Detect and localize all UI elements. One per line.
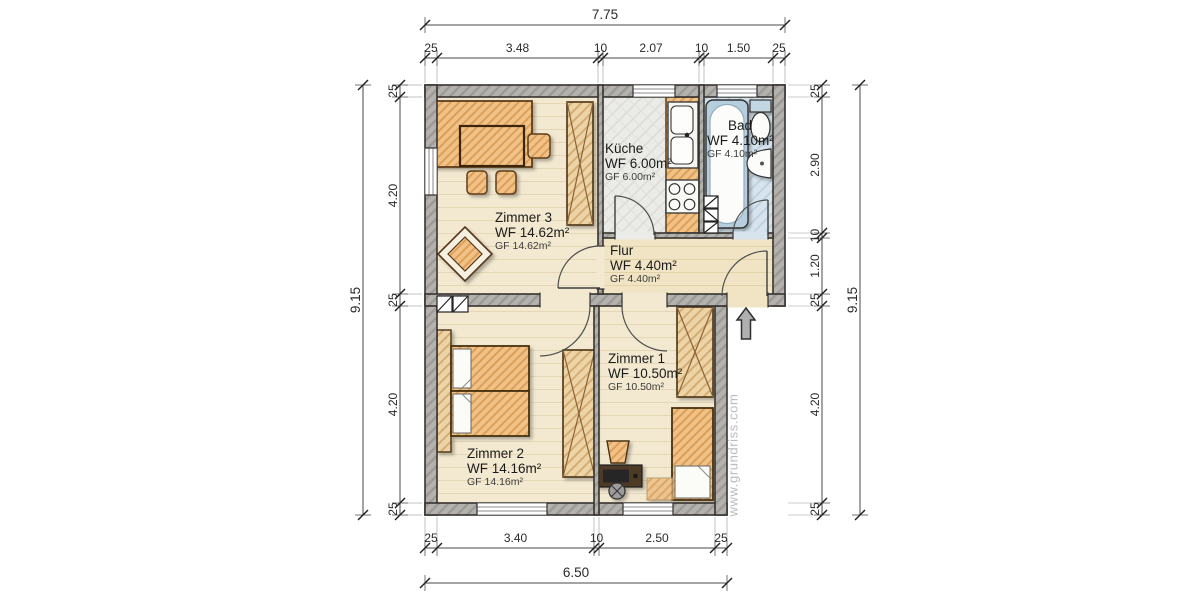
room-name: Zimmer 2	[467, 446, 541, 461]
room-name: Zimmer 3	[495, 210, 569, 225]
dimension-label: 2.90	[808, 153, 822, 177]
room-name: Küche	[605, 141, 672, 156]
dimension-label: 25	[714, 531, 728, 545]
room-living-area: WF 14.16m²	[467, 461, 541, 476]
watermark: www.grundriss.com	[726, 394, 741, 517]
dimension-label: 25	[386, 293, 400, 307]
window-kueche-top	[633, 85, 675, 97]
dimension-label: 2.07	[639, 41, 663, 55]
window-bad-top	[717, 85, 757, 97]
dimension-label: 25	[808, 502, 822, 516]
room-floor-area: GF 10.50m²	[608, 381, 682, 394]
room-name: Bad	[728, 118, 774, 133]
room-floor-area: GF 14.16m²	[467, 476, 541, 489]
room-name: Flur	[610, 243, 677, 258]
wall-kueche-bad	[699, 85, 704, 238]
dimension-label: 1.20	[808, 254, 822, 278]
chair	[496, 171, 516, 194]
room-floor-area: GF 4.40m²	[610, 273, 677, 286]
dimension-label: 25	[808, 293, 822, 307]
dimension-label: 4.20	[386, 392, 400, 416]
room-label-zimmer3: Zimmer 3 WF 14.62m² GF 14.62m²	[495, 210, 569, 253]
dimension-label: 4.20	[386, 183, 400, 207]
chair	[528, 134, 550, 158]
chair	[467, 171, 487, 194]
wall-zimmer2-zimmer1	[594, 306, 599, 515]
wardrobe	[567, 102, 593, 225]
dimension-label: 25	[424, 41, 438, 55]
entrance-opening	[727, 293, 768, 308]
dimension-label: 10	[590, 531, 604, 545]
table	[460, 126, 524, 166]
dimension-label: 25	[808, 84, 822, 98]
kitchen-sink	[668, 102, 698, 168]
room-living-area: WF 6.00m²	[605, 156, 672, 171]
room-label-bad: Bad WF 4.10m² GF 4.10m²	[707, 118, 774, 161]
dimension-label: 6.50	[563, 565, 589, 580]
room-living-area: WF 4.10m²	[707, 133, 774, 148]
room-floor-area: GF 14.62m²	[495, 240, 569, 253]
room-living-area: WF 14.62m²	[495, 225, 569, 240]
dimension-label: 10	[594, 41, 608, 55]
dimension-label: 4.20	[808, 392, 822, 416]
dimension-label: 25	[424, 531, 438, 545]
dimension-label: 2.50	[645, 531, 669, 545]
dimension-label: 1.50	[727, 41, 751, 55]
single-bed	[672, 408, 713, 500]
room-floor-area: GF 4.10m²	[707, 148, 774, 161]
desk-chair	[607, 441, 629, 463]
window-zimmer2-bottom	[477, 503, 547, 515]
wardrobe	[563, 350, 595, 477]
double-bed	[437, 330, 529, 452]
window-zimmer3-left	[425, 148, 437, 195]
stool	[609, 483, 625, 499]
room-name: Zimmer 1	[608, 351, 682, 366]
floor-plan-page: 253.48102.07101.50257.75253.40102.50256.…	[0, 0, 1200, 600]
dimension-label: 7.75	[592, 7, 618, 22]
dimension-label: 25	[386, 502, 400, 516]
floor-plan-canvas: 253.48102.07101.50257.75253.40102.50256.…	[0, 0, 1200, 600]
dimension-label: 9.15	[348, 287, 363, 313]
entrance-arrow-icon	[737, 308, 755, 339]
wall-exterior-bottom	[425, 503, 727, 515]
dimension-label: 10	[808, 229, 822, 243]
wall-exterior-right-upper	[773, 85, 785, 306]
dimension-label: 25	[772, 41, 786, 55]
room-living-area: WF 10.50m²	[608, 366, 682, 381]
room-living-area: WF 4.40m²	[610, 258, 677, 273]
window-zimmer1-bottom	[623, 503, 673, 515]
room-label-flur: Flur WF 4.40m² GF 4.40m²	[610, 243, 677, 286]
rug	[647, 478, 673, 500]
dimension-label: 10	[695, 41, 709, 55]
room-label-kueche: Küche WF 6.00m² GF 6.00m²	[605, 141, 672, 184]
room-floor-area: GF 6.00m²	[605, 171, 672, 184]
dimension-label: 25	[386, 84, 400, 98]
dimension-label: 3.48	[506, 41, 530, 55]
dimension-label: 9.15	[845, 287, 860, 313]
room-label-zimmer1: Zimmer 1 WF 10.50m² GF 10.50m²	[608, 351, 682, 394]
room-label-zimmer2: Zimmer 2 WF 14.16m² GF 14.16m²	[467, 446, 541, 489]
stove	[666, 180, 699, 213]
wardrobe	[677, 307, 713, 397]
dimension-label: 3.40	[504, 531, 528, 545]
